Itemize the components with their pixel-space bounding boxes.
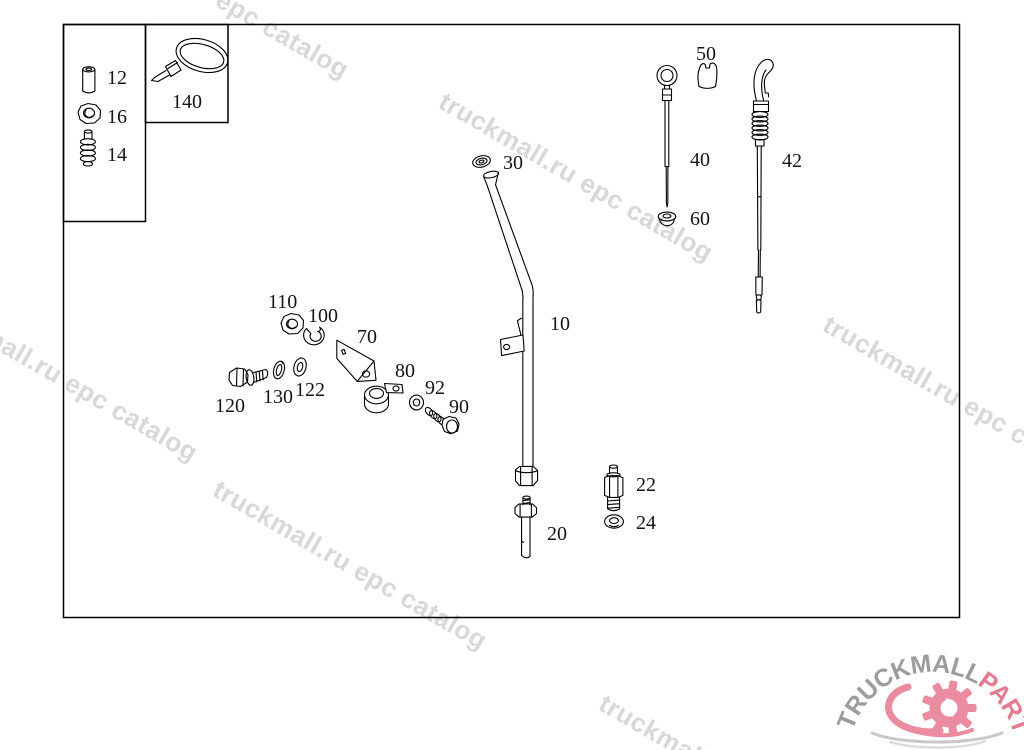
part-120-drawing (229, 368, 268, 387)
part-80-drawing (365, 384, 404, 413)
part-22-label: 22 (636, 474, 656, 496)
part-60-drawing (658, 212, 676, 226)
part-92-drawing (410, 395, 424, 410)
part-30-label: 30 (503, 152, 523, 174)
part-16-drawing (78, 104, 101, 124)
part-14-drawing (80, 130, 95, 166)
part-40-label: 40 (690, 149, 710, 171)
part-70-label: 70 (357, 326, 377, 348)
part-20-label: 20 (547, 523, 567, 545)
part-110-drawing (281, 314, 304, 335)
part-12-label: 12 (107, 67, 127, 89)
part-92-label: 92 (425, 377, 445, 399)
part-120-label: 120 (215, 395, 245, 417)
part-labels: 12 16 14 140 30 10 50 40 60 42 110 100 7… (107, 43, 802, 545)
part-122-label: 122 (295, 379, 325, 401)
logo-text-parts: PARTS (0, 0, 1024, 737)
part-24-drawing (605, 515, 624, 528)
part-22-drawing (605, 465, 623, 511)
part-42-drawing (752, 59, 773, 313)
part-100-label: 100 (308, 305, 338, 327)
diagram-border (64, 25, 960, 618)
part-110-label: 110 (268, 291, 297, 313)
part-30-drawing (471, 154, 491, 169)
part-10-label: 10 (550, 313, 570, 335)
part-16-label: 16 (107, 106, 127, 128)
part-10-drawing (483, 170, 538, 485)
part-130-label: 130 (263, 386, 293, 408)
part-50-drawing (698, 63, 717, 88)
part-24-label: 24 (636, 512, 656, 534)
part-14-label: 14 (107, 144, 127, 166)
logo-arc-text: TRUCKMALLPARTS (0, 0, 1024, 737)
brand-logo: TRUCKMALLPARTS (0, 0, 1024, 748)
part-140-drawing (152, 33, 232, 82)
part-42-label: 42 (782, 150, 802, 172)
parts-diagram: 12 16 14 140 30 10 50 40 60 42 110 100 7… (0, 0, 1024, 750)
part-100-drawing (304, 327, 325, 345)
part-50-label: 50 (696, 43, 716, 65)
part-130-drawing (272, 360, 287, 380)
part-40-drawing (657, 66, 677, 208)
part-140-label: 140 (172, 91, 202, 113)
part-60-label: 60 (690, 208, 710, 230)
epc-diagram-page: truckmall.ru epc catalog truckmall.ru ep… (0, 0, 1024, 750)
gear-icon (922, 680, 977, 736)
inset-box-hardware (64, 25, 146, 222)
part-12-drawing (83, 67, 95, 93)
part-20-drawing (515, 496, 537, 558)
part-80-label: 80 (395, 360, 415, 382)
part-90-label: 90 (449, 396, 469, 418)
diagram-frame (64, 25, 960, 618)
part-122-drawing (292, 357, 308, 378)
